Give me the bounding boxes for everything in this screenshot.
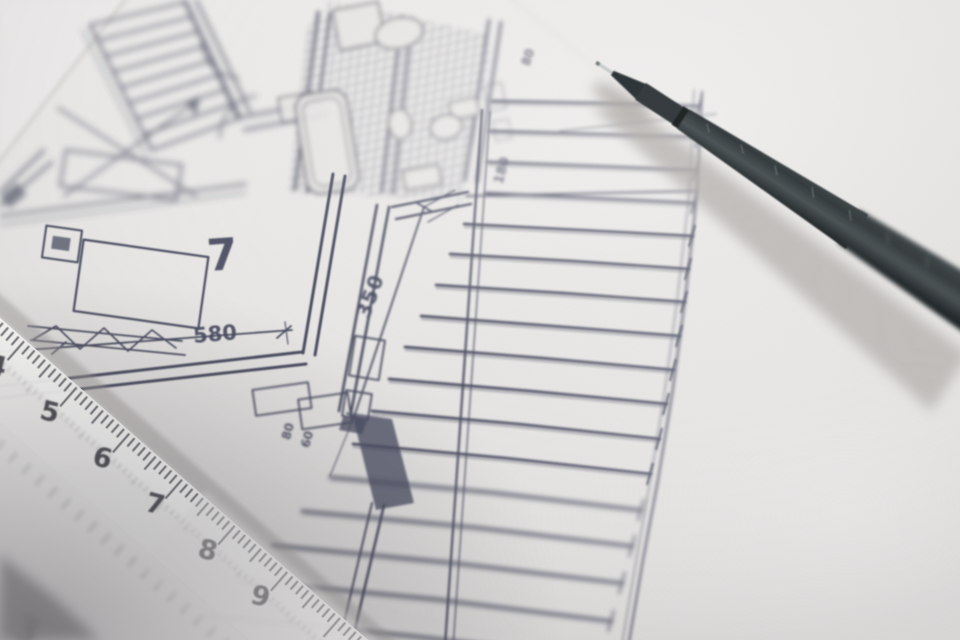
film-grain xyxy=(0,0,960,640)
photo-blueprint-scene: 580 7 180 80 xyxy=(0,0,960,640)
scene-canvas: 580 7 180 80 xyxy=(0,0,960,640)
